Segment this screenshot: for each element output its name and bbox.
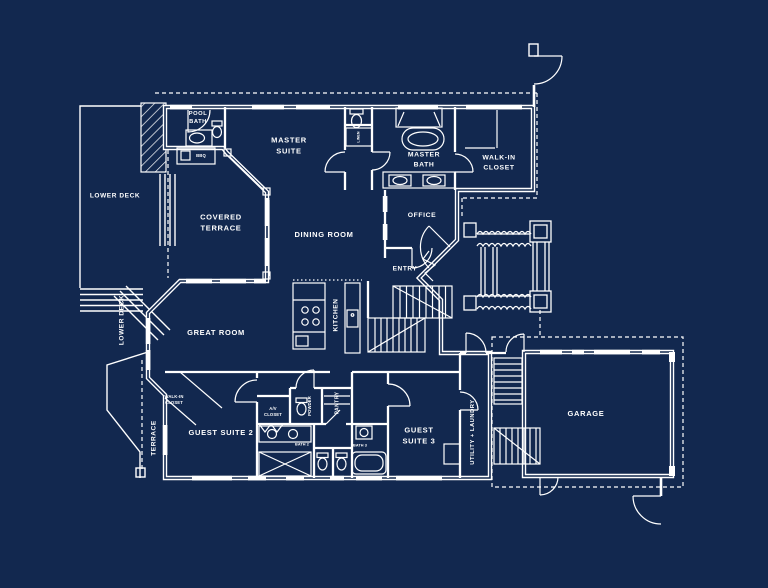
room-label-dining-room: DINING ROOM [294,230,353,241]
powder-toilet-icon [296,398,307,415]
closet-shelving [465,110,497,148]
room-label-powder: POWDER [307,396,313,416]
room-label-walk-in-closet: WALK-IN CLOSET [482,153,515,172]
room-label-terrace: TERRACE [149,420,158,456]
lower-deck [80,103,175,340]
room-label-entry: ENTRY [393,264,418,273]
room-label-lower-deck: LOWER DECK [90,191,140,200]
garage-stairs [494,358,540,464]
room-label-master-bath: MASTER BATH [408,150,440,169]
room-label-utility-laundry: UTILITY + LAUNDRY [469,399,477,464]
room-label-covered-terrace: COVERED TERRACE [200,213,242,234]
side-gate-bottom [633,477,661,524]
bath3-fixtures [352,426,386,474]
room-label-lower-deck-side: LOWER DECK [117,295,126,345]
floor-plan-drawing [0,0,768,588]
room-label-master-suite: MASTER SUITE [271,136,307,157]
entry-portico [464,221,551,312]
room-label-av-closet: A/V CLOSET [264,406,282,418]
room-label-office: OFFICE [408,211,437,221]
kitchen-fixtures [293,280,362,353]
guest3-niche [444,444,460,464]
master-bath-fixtures [383,108,455,188]
room-label-great-room: GREAT ROOM [187,328,245,339]
fixtures [165,108,497,476]
room-label-pantry: PANTRY [335,392,342,415]
bath2-fixtures [259,426,311,476]
room-label-guest-suite-3: GUEST SUITE 3 [402,426,435,447]
room-label-linen: LINEN [356,131,361,142]
room-label-bath-3: BATH 3 [353,443,367,448]
floor-plan: POOL BATH BBQ MASTER SUITE MASTER BATH L… [0,0,768,588]
side-gate-top [529,44,562,107]
room-label-guest-suite-2: GUEST SUITE 2 [188,428,253,439]
room-label-guest2-closet: WALK-IN CLOSET [164,394,183,406]
room-label-kitchen: KITCHEN [331,299,340,332]
room-label-garage: GARAGE [568,409,605,420]
room-label-bbq: BBQ [196,153,206,159]
interior-walls [165,107,506,478]
room-label-bath-2: BATH 2 [295,442,309,447]
room-label-pool-bath: POOL BATH [189,110,208,126]
